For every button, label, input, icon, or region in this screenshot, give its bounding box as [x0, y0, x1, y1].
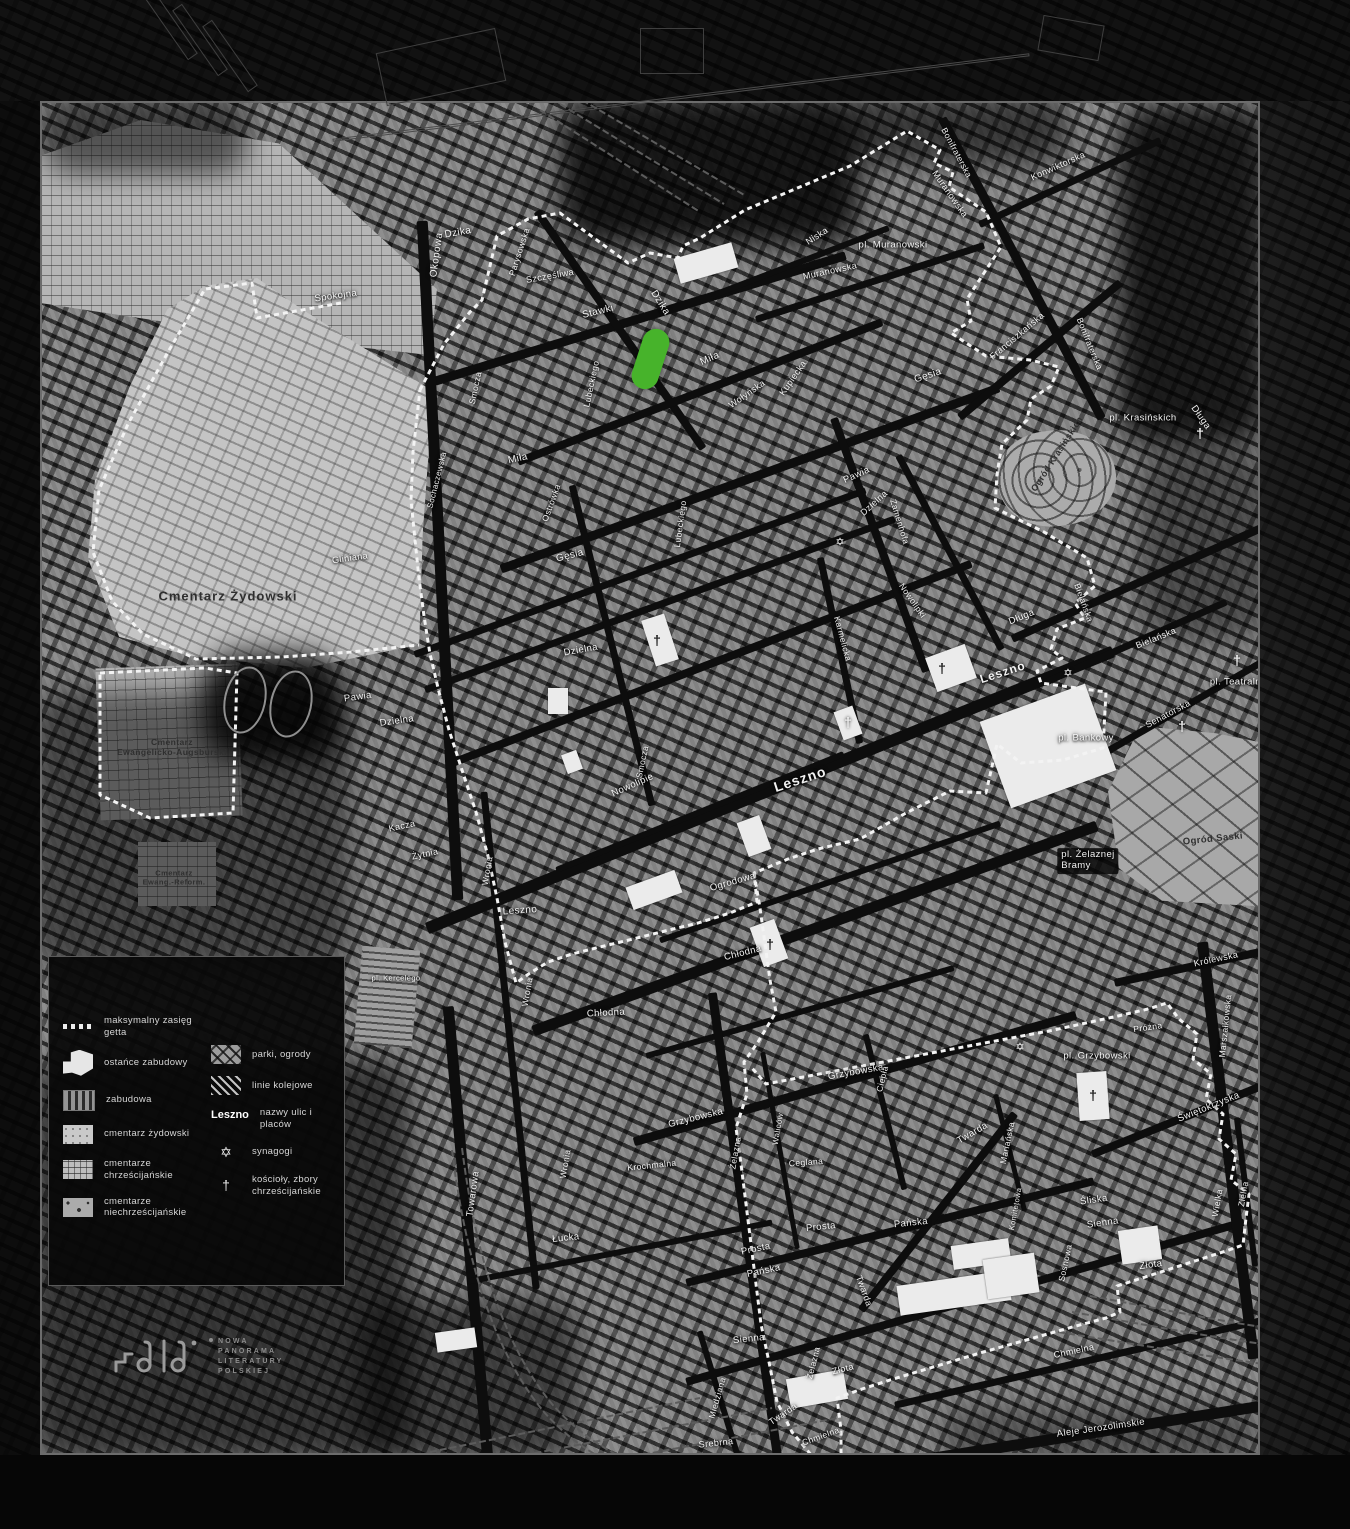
legend-label: nazwy ulic i placów: [260, 1107, 341, 1131]
legend-label: linie kolejowe: [252, 1080, 313, 1092]
legend-item-non-christian-cemeteries: cmentarze niechrześcijańskie: [63, 1196, 213, 1220]
legend-item-surviving-buildings: ostańce zabudowy: [63, 1050, 213, 1076]
legend-item-buildings: zabudowa: [63, 1090, 213, 1111]
area-label: Cmentarz Ewang.-Reform.: [143, 869, 206, 886]
street-name-key: Leszno: [211, 1109, 249, 1128]
logo-line: NOWA: [218, 1337, 284, 1347]
church-marker: †: [938, 660, 946, 676]
parks-swatch: [211, 1045, 241, 1064]
legend-item-street-names: Leszno nazwy ulic i placów: [211, 1107, 341, 1131]
legend-label: zabudowa: [106, 1094, 152, 1106]
street-label: pl. Muranowski: [859, 241, 928, 252]
church-marker: †: [844, 714, 852, 730]
nplp-logo-wordmark: NOWA PANORAMA LITERATURY POLSKIEJ: [218, 1337, 284, 1377]
synagogue-marker: ✡: [1063, 667, 1072, 680]
street-label: pl. Teatralny: [1210, 678, 1260, 689]
synagogue-marker: ✡: [1015, 1041, 1024, 1054]
logo-line: POLSKIEJ: [218, 1367, 284, 1377]
street-label: pl. Kercelego: [372, 975, 421, 984]
map-outside-west: [0, 101, 40, 1455]
legend-label: parki, ogrody: [252, 1049, 311, 1061]
church-marker: †: [766, 936, 774, 952]
legend-label: cmentarze chrześcijańskie: [104, 1158, 213, 1182]
street-label: pl. Bankowy: [1058, 734, 1114, 745]
synagogue-marker: ✡: [835, 536, 844, 549]
jewish-cemetery-swatch: [63, 1125, 93, 1144]
nplp-logo-icon: [112, 1331, 204, 1383]
christian-cemeteries-swatch: [63, 1160, 93, 1179]
legend-label: cmentarze niechrześcijańskie: [104, 1196, 213, 1220]
legend-item-parks: parki, ogrody: [211, 1045, 341, 1064]
legend-item-churches: † kościoły, zbory chrześcijańskie: [211, 1174, 341, 1198]
street-label: pl. Krasińskich: [1109, 414, 1176, 425]
legend-item-christian-cemeteries: cmentarze chrześcijańskie: [63, 1158, 213, 1182]
synagogue-icon: ✡: [211, 1143, 241, 1162]
street-label: pl. Żelaznej Bramy: [1057, 848, 1118, 874]
street-label: Chłodna: [587, 1008, 626, 1021]
legend-label: cmentarz żydowski: [104, 1128, 189, 1140]
buildings-swatch: [63, 1090, 95, 1111]
map-outside-east: [1260, 101, 1350, 1455]
nplp-logo: NOWA PANORAMA LITERATURY POLSKIEJ: [112, 1322, 342, 1392]
legend-label: synagogi: [252, 1146, 292, 1158]
legend-item-jewish-cemetery: cmentarz żydowski: [63, 1125, 213, 1144]
church-marker: †: [1233, 652, 1241, 668]
church-cross-icon: †: [211, 1176, 241, 1195]
church-marker: †: [1178, 718, 1186, 734]
legend-panel: maksymalny zasięg getta ostańce zabudowy…: [48, 956, 345, 1286]
map-outside-north: [0, 0, 1350, 101]
legend-item-synagogues: ✡ synagogi: [211, 1143, 341, 1162]
legend-label: kościoły, zbory chrześcijańskie: [252, 1174, 321, 1198]
warsaw-ghetto-map-page: ✡✡✡†††††††† DzikaDzikaOkopowaSpokojnaPar…: [0, 0, 1350, 1529]
church-marker: †: [1089, 1087, 1097, 1103]
logo-line: PANORAMA: [218, 1347, 284, 1357]
street-label: pl. Grzybowski: [1063, 1052, 1130, 1063]
legend-label: maksymalny zasięg getta: [104, 1015, 213, 1039]
logo-line: LITERATURY: [218, 1357, 284, 1367]
railways-swatch: [211, 1076, 241, 1095]
legend-item-railways: linie kolejowe: [211, 1076, 341, 1095]
legend-item-ghetto-extent: maksymalny zasięg getta: [63, 1015, 213, 1039]
ghetto-boundary-swatch: [63, 1024, 93, 1029]
street-label: Leszno: [502, 904, 537, 918]
logo-bullet: [209, 1338, 213, 1342]
legend-label: ostańce zabudowy: [104, 1057, 188, 1069]
area-label: Cmentarz Ewangelicko-Augsburski: [117, 738, 227, 758]
area-label: Cmentarz Żydowski: [158, 590, 297, 605]
church-marker: †: [653, 632, 661, 648]
surviving-buildings-swatch: [63, 1050, 93, 1076]
map-outside-south: [0, 1455, 1350, 1529]
non-christian-cemeteries-swatch: [63, 1198, 93, 1217]
